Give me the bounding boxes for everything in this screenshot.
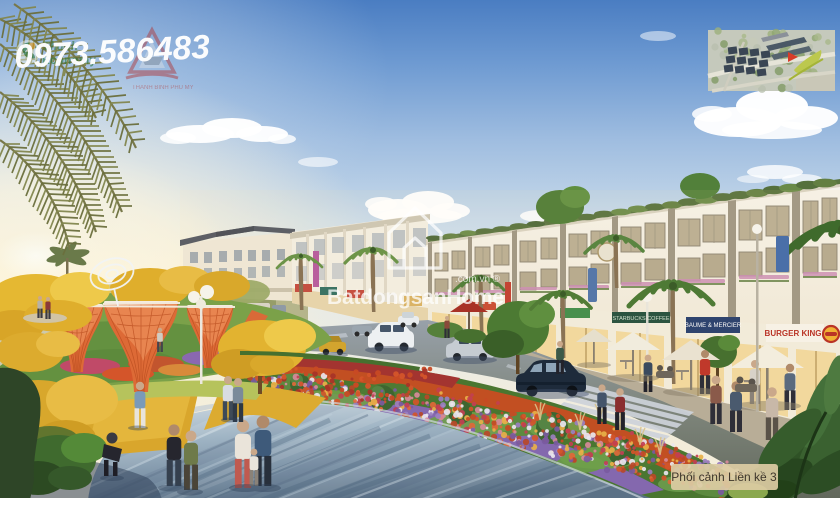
svg-text:.com.vn ®: .com.vn ® (455, 274, 501, 285)
svg-text:BatdongsanHome: BatdongsanHome (327, 286, 504, 309)
svg-text:Phối cảnh Liền kề 3: Phối cảnh Liền kề 3 (671, 470, 777, 484)
svg-text:THANH BINH PHU MY: THANH BINH PHU MY (132, 85, 194, 91)
